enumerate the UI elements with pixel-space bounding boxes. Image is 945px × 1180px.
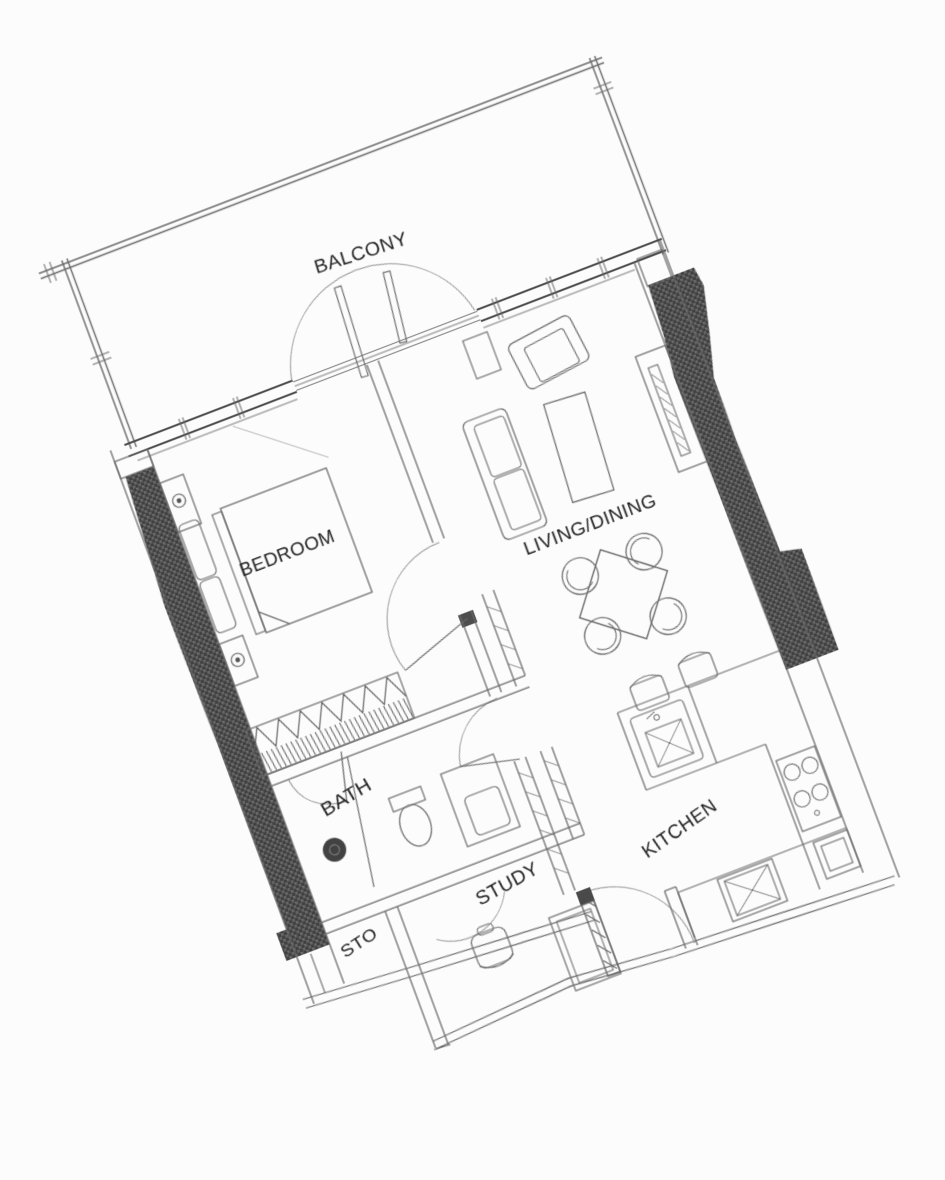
svg-text:BATH: BATH [317,774,375,821]
svg-text:STUDY: STUDY [472,858,542,910]
svg-text:BALCONY: BALCONY [312,229,411,279]
svg-text:LIVING/DINING: LIVING/DINING [521,490,660,560]
svg-text:KITCHEN: KITCHEN [638,795,721,863]
svg-text:STO: STO [337,924,381,962]
svg-text:BEDROOM: BEDROOM [237,526,338,582]
